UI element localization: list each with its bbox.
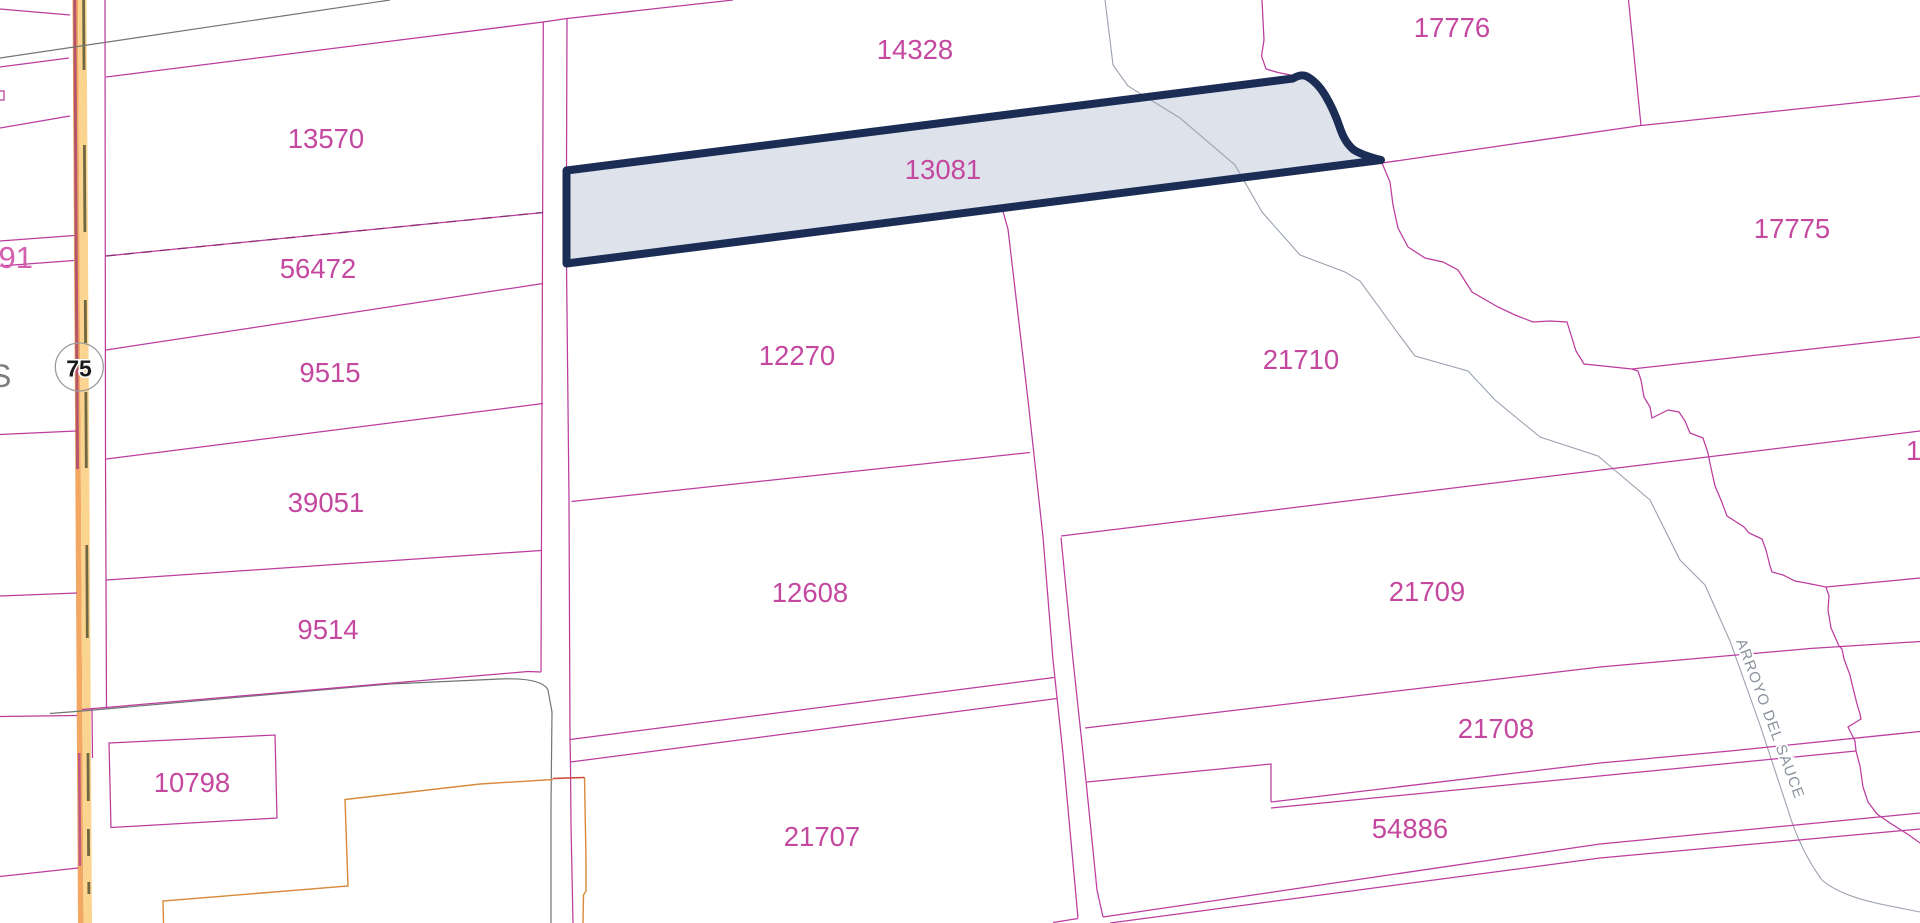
svg-text:21707: 21707 bbox=[784, 821, 860, 852]
svg-text:14328: 14328 bbox=[877, 34, 953, 65]
svg-text:17775: 17775 bbox=[1754, 213, 1830, 244]
svg-text:75: 75 bbox=[66, 356, 92, 382]
svg-text:54886: 54886 bbox=[1372, 813, 1448, 844]
svg-text:591: 591 bbox=[0, 240, 33, 275]
svg-text:12608: 12608 bbox=[772, 577, 848, 608]
svg-text:13081: 13081 bbox=[905, 154, 981, 185]
svg-text:39051: 39051 bbox=[288, 487, 364, 518]
svg-text:12270: 12270 bbox=[759, 340, 835, 371]
svg-text:S: S bbox=[0, 358, 11, 394]
svg-text:21709: 21709 bbox=[1389, 576, 1465, 607]
svg-text:9515: 9515 bbox=[299, 357, 360, 388]
svg-text:13570: 13570 bbox=[288, 123, 364, 154]
svg-text:21708: 21708 bbox=[1458, 713, 1534, 744]
svg-text:9514: 9514 bbox=[297, 614, 358, 645]
svg-text:56472: 56472 bbox=[280, 253, 356, 284]
svg-text:17776: 17776 bbox=[1414, 12, 1490, 43]
svg-text:10798: 10798 bbox=[154, 767, 230, 798]
svg-text:17: 17 bbox=[1906, 435, 1920, 466]
svg-text:21710: 21710 bbox=[1263, 344, 1339, 375]
